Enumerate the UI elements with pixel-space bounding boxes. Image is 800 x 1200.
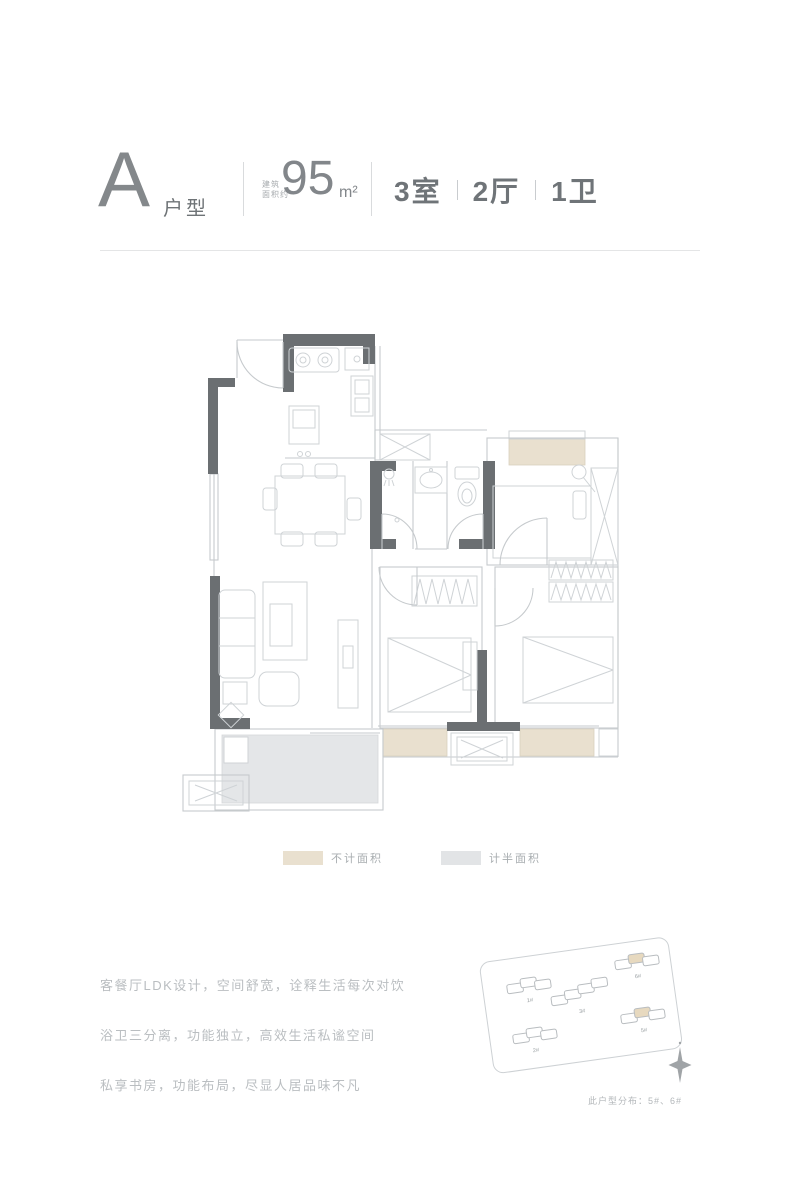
entry-door	[237, 342, 283, 388]
bedroom-right	[495, 560, 613, 703]
header-divider	[243, 162, 244, 216]
header-rule	[100, 250, 700, 251]
room-counts: 3室 2厅 1卫	[394, 170, 599, 210]
selling-point-line: 浴卫三分离，功能独立，高效生活私谧空间	[100, 1025, 376, 1044]
area-value: 95	[281, 155, 334, 203]
legend-swatch-no-area	[283, 851, 323, 865]
room-count-livingrooms: 2厅	[473, 170, 521, 210]
unit-type-label: 户型	[163, 192, 209, 221]
room-separator	[535, 180, 536, 200]
area-legend: 不计面积 计半面积	[283, 850, 541, 866]
kitchen	[289, 348, 373, 457]
room-separator	[457, 180, 458, 200]
balcony	[215, 729, 383, 810]
area-unit: m²	[339, 184, 358, 202]
bedroom-middle	[379, 567, 477, 712]
living-dining	[218, 464, 361, 728]
room-count-bedrooms: 3室	[394, 170, 442, 210]
floorplan-brochure-page: { "header": { "type_letter": "A", "type_…	[0, 0, 800, 1200]
site-plan: 1# 2# 3# 5# 6#	[478, 933, 713, 1093]
header-divider	[371, 162, 372, 216]
walls-thin	[210, 340, 618, 757]
bedroom-master	[493, 465, 618, 565]
laundry-alcove	[380, 434, 430, 460]
legend-label-no-area: 不计面积	[331, 850, 383, 866]
legend-swatch-half-area	[441, 851, 481, 865]
bathroom	[382, 467, 483, 549]
site-plan-caption: 此户型分布：5#、6#	[588, 1094, 682, 1107]
floor-plan	[175, 320, 635, 820]
selling-point-line: 私享书房，功能布局，尽显人居品味不凡	[100, 1075, 361, 1094]
selling-point-line: 客餐厅LDK设计，空间舒宽，诠释生活每次对饮	[100, 975, 405, 994]
unit-type-letter: A	[98, 140, 150, 218]
legend-label-half-area: 计半面积	[489, 850, 541, 866]
room-count-bathrooms: 1卫	[551, 170, 599, 210]
